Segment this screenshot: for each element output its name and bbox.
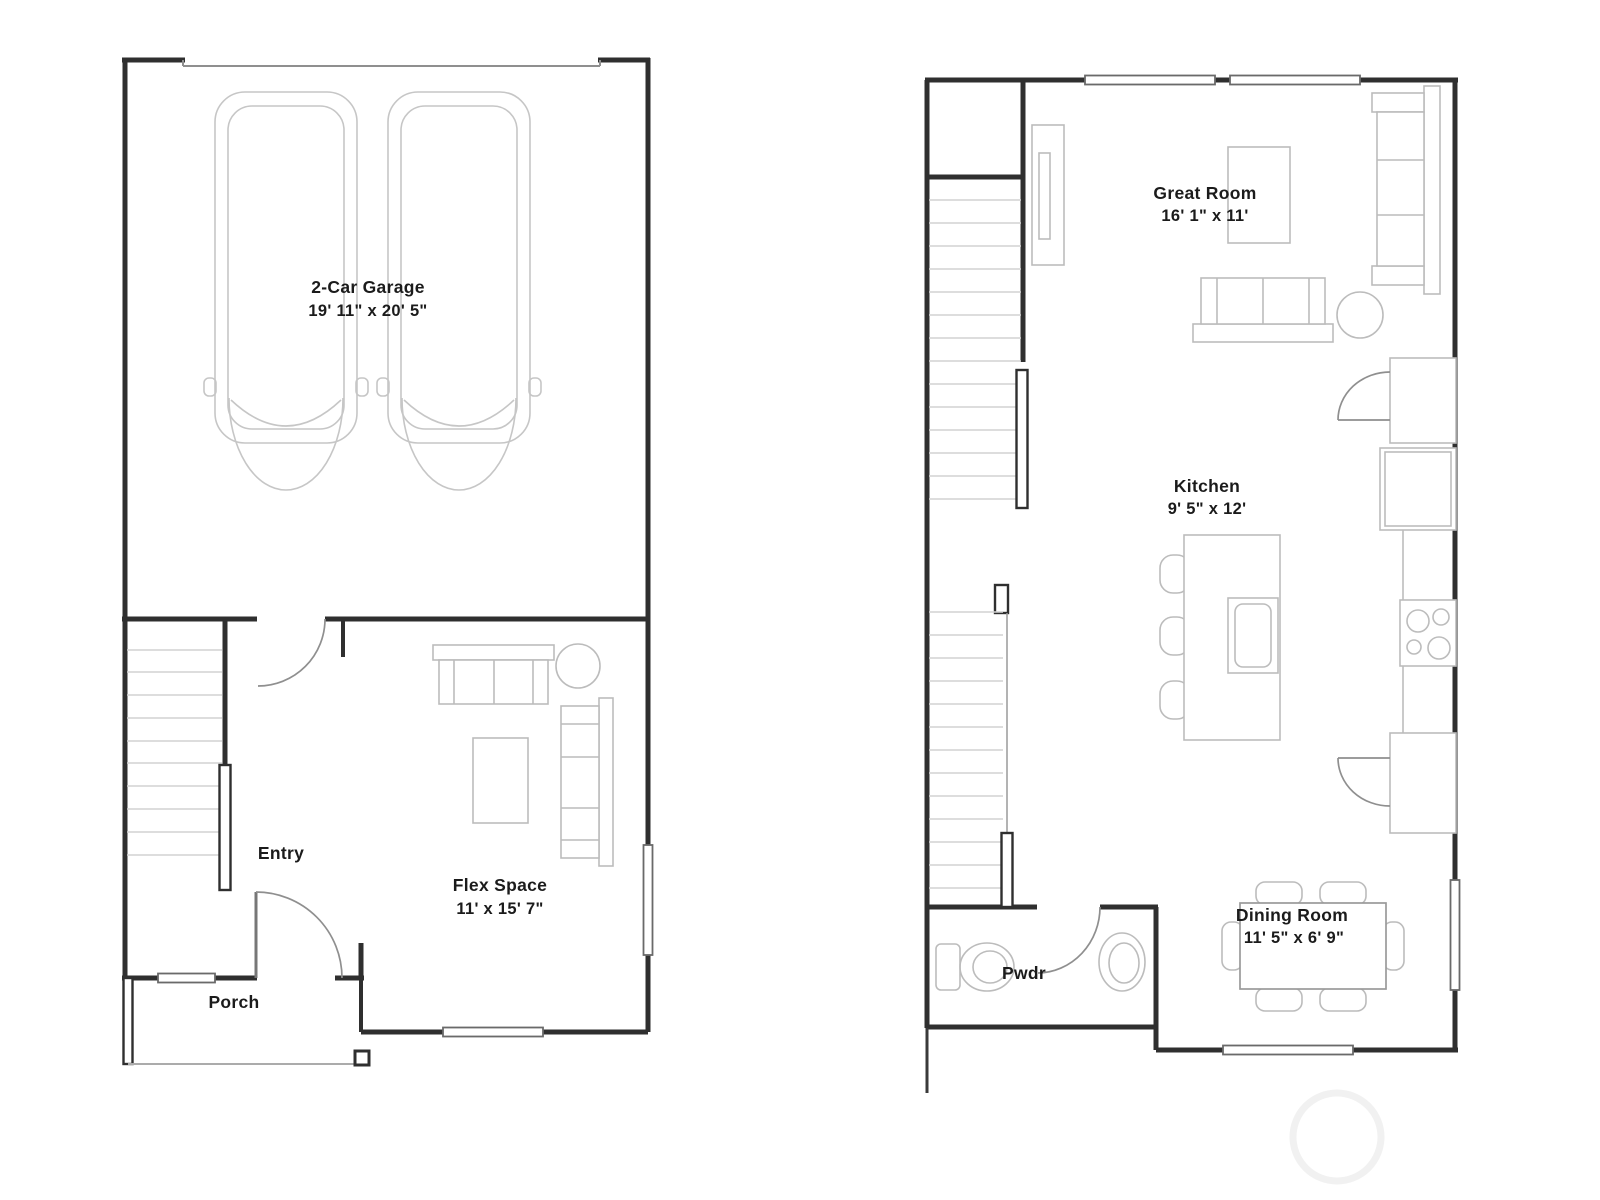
chair-icon [1320, 988, 1366, 1011]
room-label-dining: Dining Room [1236, 905, 1348, 925]
doors [256, 619, 342, 978]
chair-icon [1320, 882, 1366, 905]
pantry-cabinet-icon [1338, 358, 1456, 443]
room-dims-kitchen: 9' 5" x 12' [1168, 500, 1247, 518]
window-icon [644, 845, 653, 955]
round-table-icon [1337, 292, 1383, 338]
stair-treads-upper [929, 200, 1021, 499]
room-label-porch: Porch [208, 992, 259, 1012]
watermark-circle [1293, 1093, 1381, 1181]
room-label-powder: Pwdr [1002, 963, 1046, 983]
entry-door-swing-icon [256, 892, 342, 978]
room-label-great-room: Great Room [1153, 183, 1256, 203]
first-floor-plan: 2-Car Garage 19' 11" x 20' 5" Entry Flex… [122, 58, 653, 1065]
round-table-icon [556, 644, 600, 688]
room-dims-great-room: 16' 1" x 11' [1161, 207, 1248, 225]
porch-post [355, 1051, 369, 1065]
window-icon [158, 974, 215, 983]
window-icon [443, 1028, 543, 1037]
stair-handrail [1002, 833, 1013, 907]
sink-icon [1099, 933, 1145, 991]
exterior-wall [122, 58, 650, 1032]
closet-cabinet-icon [1338, 733, 1456, 833]
chair-icon [1256, 882, 1302, 905]
room-label-entry: Entry [258, 843, 304, 863]
interior-wall-stub [343, 619, 361, 1032]
floorplan-drawing: 2-Car Garage 19' 11" x 20' 5" Entry Flex… [0, 0, 1600, 1200]
stair-handrail [220, 765, 231, 890]
stair-handrail [995, 585, 1008, 613]
stairs [929, 200, 1028, 907]
room-dims-garage: 19' 11" x 20' 5" [308, 302, 427, 320]
sofa-icon [1372, 86, 1440, 294]
garage-door-icon [183, 60, 600, 66]
porch-railing [124, 978, 133, 1064]
first-floor-walls [122, 58, 650, 1032]
chair-icon [1256, 988, 1302, 1011]
garage-entry-door-swing-icon [258, 619, 325, 686]
chaise-sofa-icon [561, 698, 613, 866]
cooktop-icon [1400, 600, 1456, 666]
loveseat-icon [1193, 278, 1333, 342]
window-icon [1230, 76, 1360, 85]
room-dims-dining: 11' 5" x 6' 9" [1244, 929, 1344, 947]
tv-console-icon [1032, 125, 1064, 265]
kitchen-island-icon [1160, 535, 1280, 740]
refrigerator-icon [1380, 448, 1456, 530]
stair-treads-lower [929, 612, 1003, 888]
floorplan-page: 2-Car Garage 19' 11" x 20' 5" Entry Flex… [0, 0, 1600, 1200]
window-icon [1085, 76, 1215, 85]
room-label-flex: Flex Space [453, 875, 547, 895]
stairs [127, 650, 231, 890]
coffee-table-icon [473, 738, 528, 823]
stair-handrail [1017, 370, 1028, 508]
room-label-kitchen: Kitchen [1174, 476, 1240, 496]
second-floor-plan: Great Room 16' 1" x 11' Kitchen 9' 5" x … [925, 76, 1460, 1182]
window-icon [1451, 880, 1460, 990]
room-label-garage: 2-Car Garage [311, 277, 425, 297]
powder-door-swing-icon [1038, 907, 1100, 973]
room-dims-flex: 11' x 15' 7" [456, 900, 543, 918]
window-icon [1223, 1046, 1353, 1055]
sofa-icon [433, 645, 554, 704]
stair-treads [127, 650, 222, 855]
